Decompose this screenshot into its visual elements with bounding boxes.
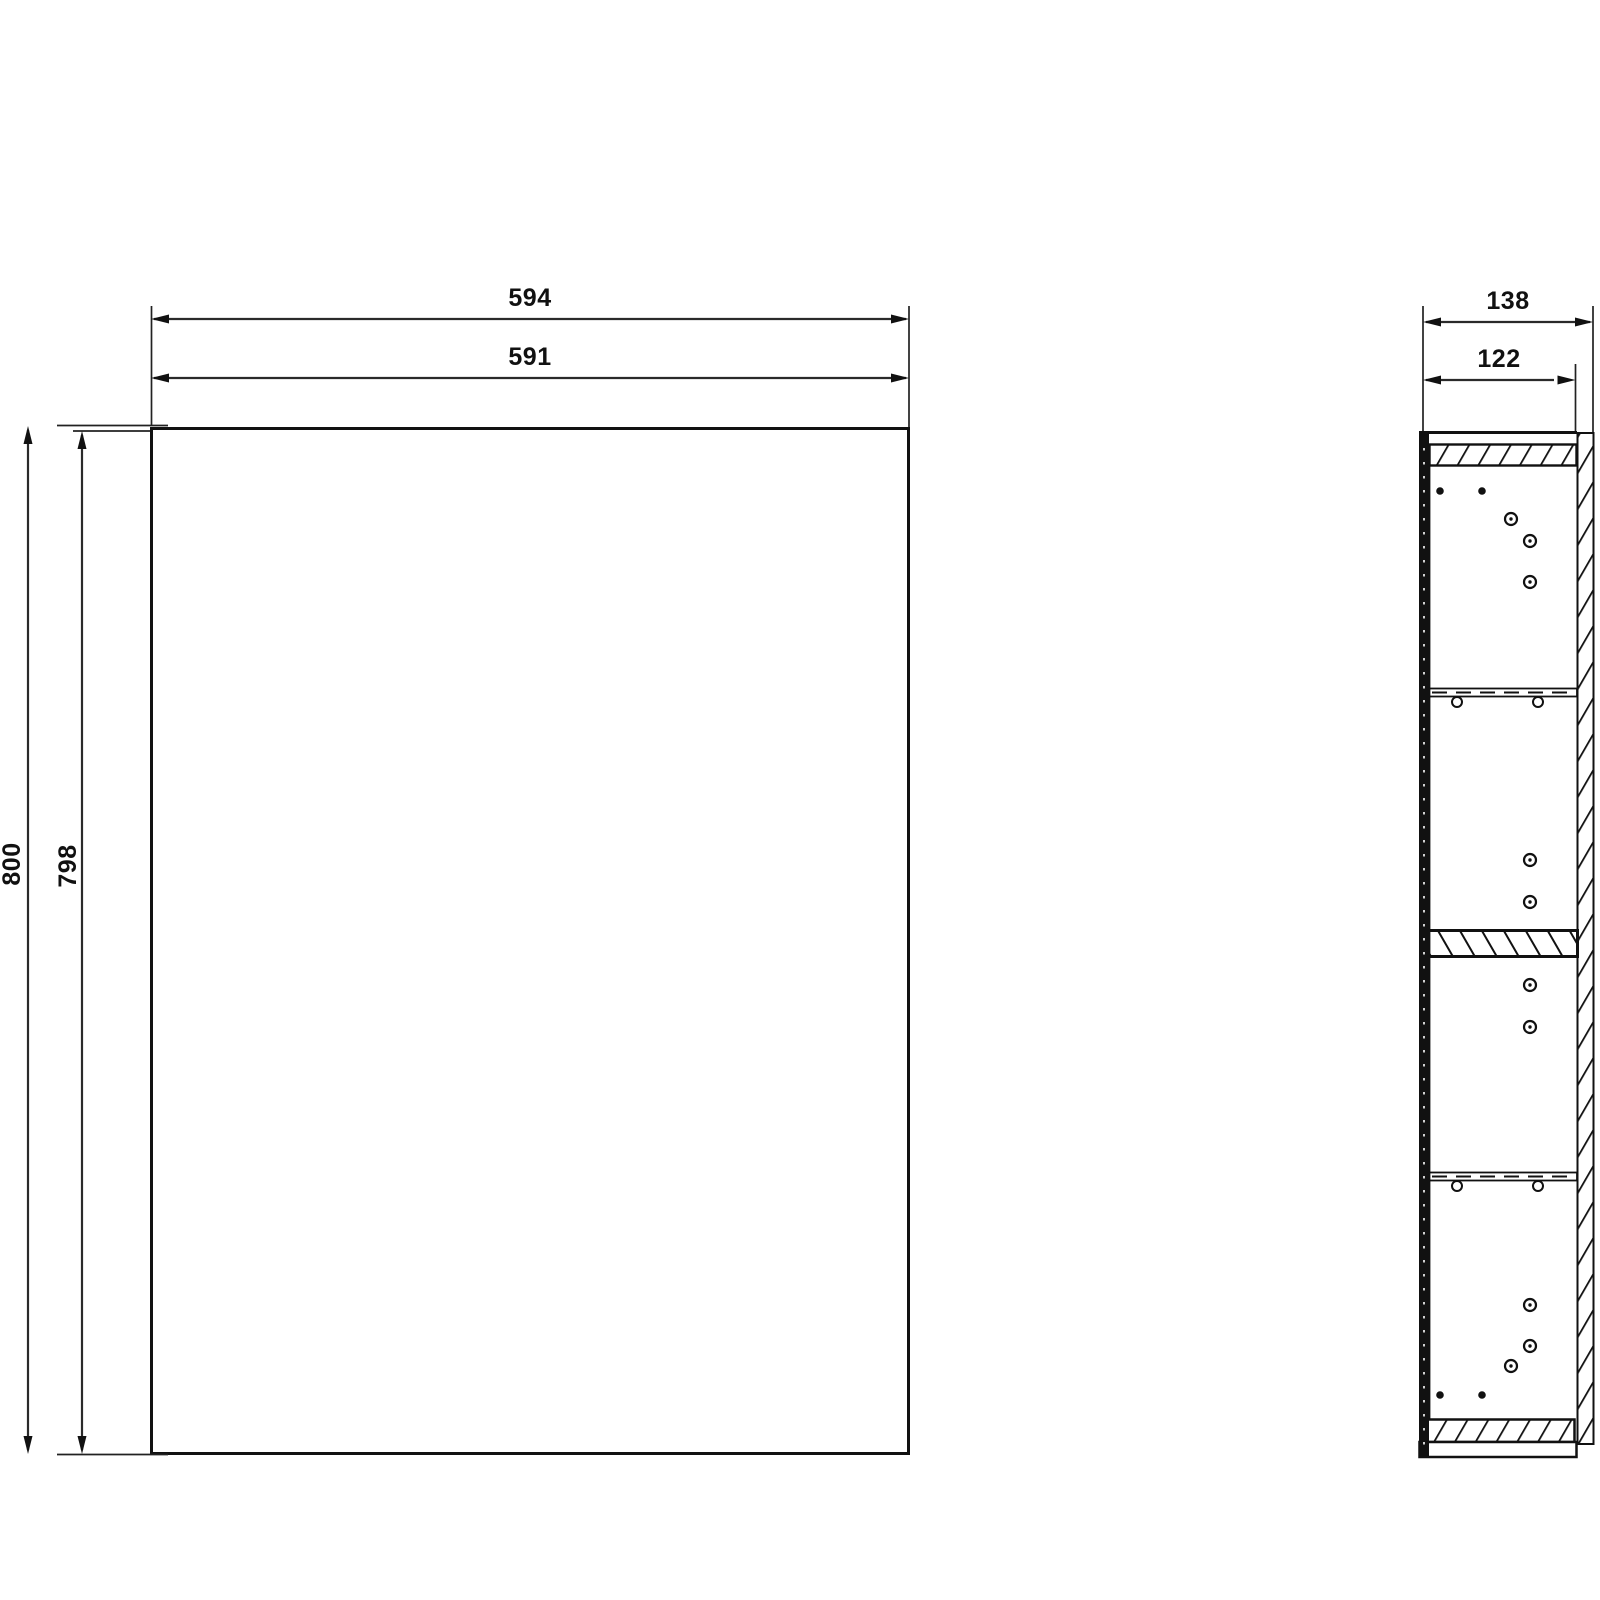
arrowhead-right <box>891 374 909 383</box>
screw-hole <box>1478 487 1486 495</box>
cabinet-front-outline <box>152 429 909 1454</box>
dim-depth-outer: 138 <box>1423 287 1593 327</box>
arrowhead-right <box>1575 318 1593 327</box>
arrowhead-left <box>1423 318 1441 327</box>
arrowhead-bottom <box>78 1436 87 1454</box>
dim-width-inner: 591 <box>151 343 909 383</box>
dim-label-width-outer: 594 <box>508 284 551 312</box>
shelf-pin <box>1533 1181 1543 1191</box>
arrowhead-top <box>24 426 33 444</box>
shelf-pin-hole <box>1524 1021 1536 1033</box>
dim-label-width-inner: 591 <box>508 343 551 371</box>
dim-height-outer: 800 <box>0 426 33 1454</box>
dim-label-height-inner: 798 <box>54 844 82 887</box>
shelf-pin-hole <box>1524 1340 1536 1352</box>
arrowhead-left <box>151 374 169 383</box>
shelf-pin-hole <box>1524 1299 1536 1311</box>
shelf-pin <box>1533 697 1543 707</box>
shelf-pin <box>1452 1181 1462 1191</box>
dim-depth-inner: 122 <box>1423 345 1576 385</box>
arrowhead-right <box>1558 376 1576 385</box>
screw-hole <box>1436 487 1444 495</box>
dim-width-outer: 594 <box>151 284 909 324</box>
bottom-trim <box>1420 1442 1577 1457</box>
shelf-pin-hole <box>1524 576 1536 588</box>
bottom-panel-section <box>1427 1420 1575 1443</box>
door-profile <box>1419 431 1429 1457</box>
shelf-pin-hole <box>1524 535 1536 547</box>
arrowhead-bottom <box>24 1436 33 1454</box>
adjustable-shelf-upper <box>1430 689 1578 708</box>
arrowhead-left <box>1423 376 1441 385</box>
middle-shelf-section <box>1427 931 1578 957</box>
top-panel-section <box>1430 445 1577 466</box>
dim-label-depth-inner: 122 <box>1477 345 1520 373</box>
back-panel-section <box>1578 433 1594 1444</box>
shelf-pin-hole <box>1524 896 1536 908</box>
screw-hole <box>1436 1391 1444 1399</box>
screw-hole <box>1478 1391 1486 1399</box>
cabinet-dimension-drawing: 594 591 800 798 <box>0 0 1600 1600</box>
shelf-pin-hole <box>1524 979 1536 991</box>
front-view: 594 591 800 798 <box>0 284 909 1455</box>
dim-label-depth-outer: 138 <box>1486 287 1529 315</box>
dim-label-height-outer: 800 <box>0 842 26 885</box>
arrowhead-left <box>151 315 169 324</box>
shelf-pin-hole <box>1505 1360 1517 1372</box>
dim-height-inner: 798 <box>54 431 87 1454</box>
shelf-pin <box>1452 697 1462 707</box>
shelf-pin-hole <box>1524 854 1536 866</box>
arrowhead-right <box>891 315 909 324</box>
shelf-pin-hole <box>1505 513 1517 525</box>
side-view: 138 122 <box>1419 287 1594 1457</box>
adjustable-shelf-lower <box>1430 1173 1578 1192</box>
technical-drawing-page: 594 591 800 798 <box>0 0 1600 1600</box>
arrowhead-top <box>78 431 87 449</box>
